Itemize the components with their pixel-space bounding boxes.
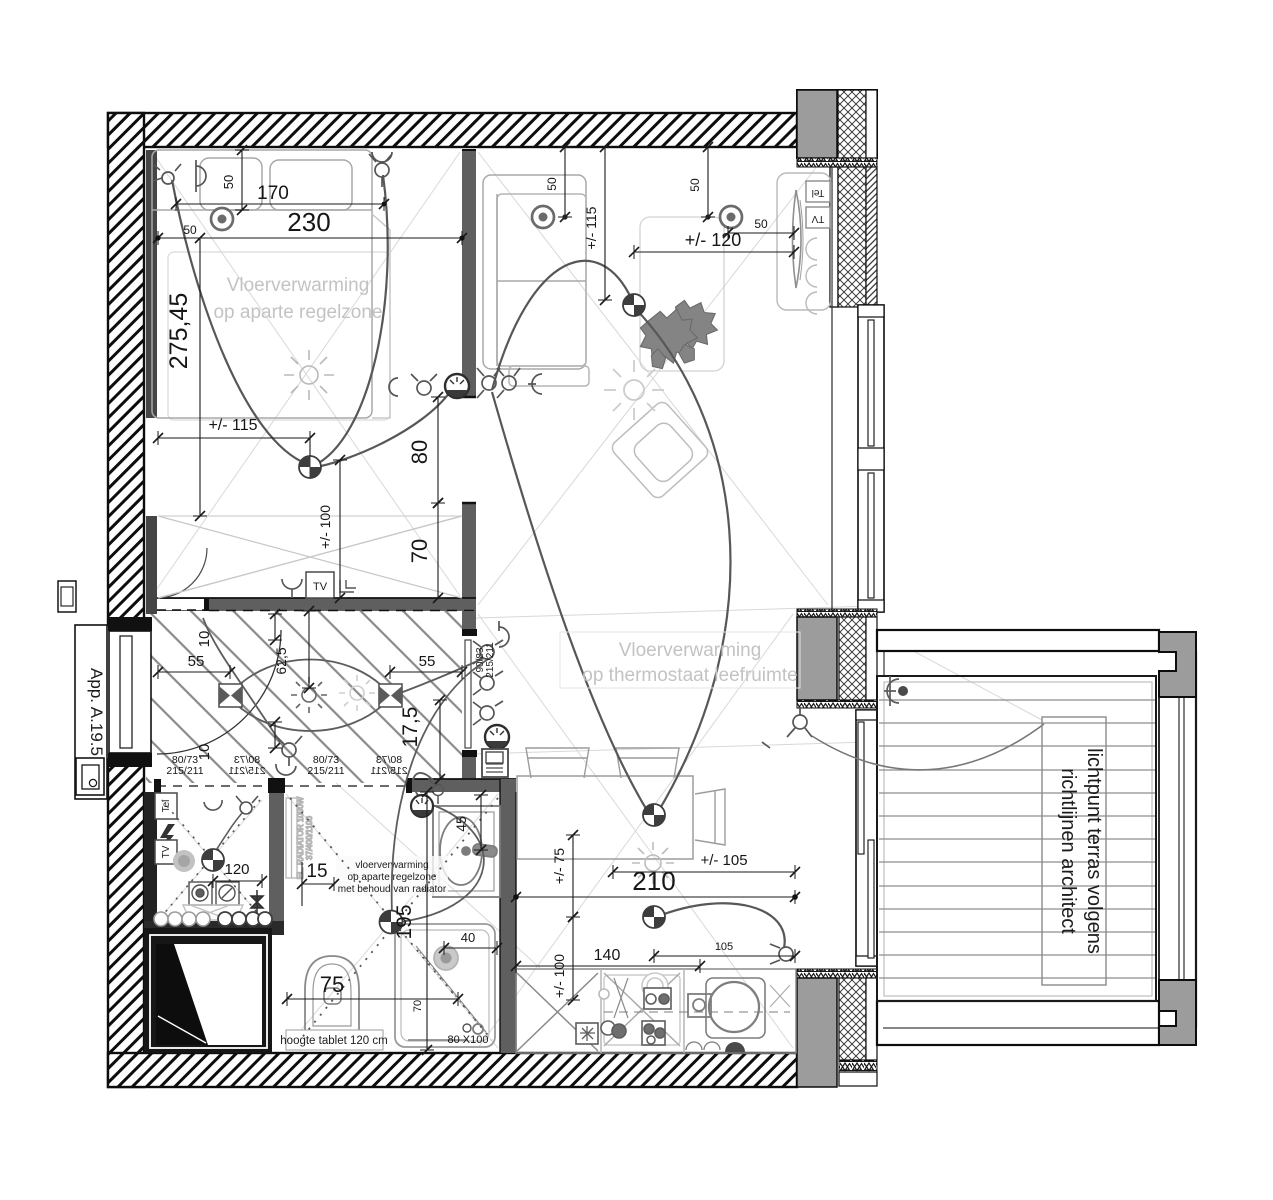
svg-text:17,5: 17,5 [399,707,422,748]
svg-text:richtlijnen architect: richtlijnen architect [1057,768,1079,934]
svg-text:EL. RADIATOR 1000W: EL. RADIATOR 1000W [296,796,305,879]
svg-text:75: 75 [320,972,344,997]
svg-text:Vloerverwarming: Vloerverwarming [619,640,762,661]
svg-text:210: 210 [632,866,675,896]
svg-text:+/- 115: +/- 115 [583,206,599,249]
svg-text:50: 50 [688,178,702,192]
svg-text:10: 10 [196,631,213,648]
svg-text:op aparte regelzone: op aparte regelzone [213,302,382,323]
svg-text:215/211: 215/211 [485,642,496,678]
svg-text:+/- 115: +/- 115 [208,417,257,434]
svg-text:50: 50 [754,217,768,231]
svg-text:Vloerverwarming: Vloerverwarming [227,275,370,296]
svg-text:+/- 100: +/- 100 [551,954,567,998]
svg-text:hoogte tablet 120 cm: hoogte tablet 120 cm [280,1035,387,1047]
svg-text:215/211: 215/211 [307,765,344,777]
svg-text:15: 15 [306,861,327,882]
svg-text:275,45: 275,45 [165,293,193,369]
svg-text:+/- 105: +/- 105 [700,852,747,869]
svg-text:140: 140 [594,947,621,964]
svg-text:105: 105 [715,941,733,953]
svg-text:55: 55 [188,653,205,670]
svg-text:195: 195 [393,904,416,939]
svg-text:55: 55 [419,653,436,670]
svg-text:App. A.19.5: App. A.19.5 [87,668,106,756]
svg-text:10: 10 [196,744,213,761]
svg-text:+/- 100: +/- 100 [317,505,333,549]
svg-text:40: 40 [461,930,475,945]
svg-text:80: 80 [407,440,432,464]
svg-text:230: 230 [287,207,330,237]
svg-text:50: 50 [221,175,236,189]
svg-text:50: 50 [183,223,197,237]
svg-text:lichtpunt terras volgens: lichtpunt terras volgens [1083,748,1105,954]
svg-text:TV: TV [161,845,172,858]
svg-text:Tel: Tel [812,187,825,198]
svg-text:215/211: 215/211 [228,765,265,777]
svg-text:70: 70 [407,539,432,563]
svg-text:37/400/1100: 37/400/1100 [305,816,314,860]
svg-text:120: 120 [224,861,249,878]
svg-text:50: 50 [545,177,559,191]
svg-text:+/- 75: +/- 75 [551,848,567,884]
svg-text:TV: TV [811,213,824,224]
svg-text:80 X100: 80 X100 [448,1034,489,1046]
svg-text:TV: TV [313,581,328,593]
svg-text:215/211: 215/211 [370,765,407,777]
svg-text:45: 45 [453,816,469,832]
svg-text:70: 70 [412,1000,424,1012]
svg-text:62,5: 62,5 [273,647,289,674]
svg-text:215/211: 215/211 [166,765,203,777]
svg-text:op thermostaat leefruimte: op thermostaat leefruimte [582,665,797,686]
svg-text:170: 170 [257,183,289,204]
